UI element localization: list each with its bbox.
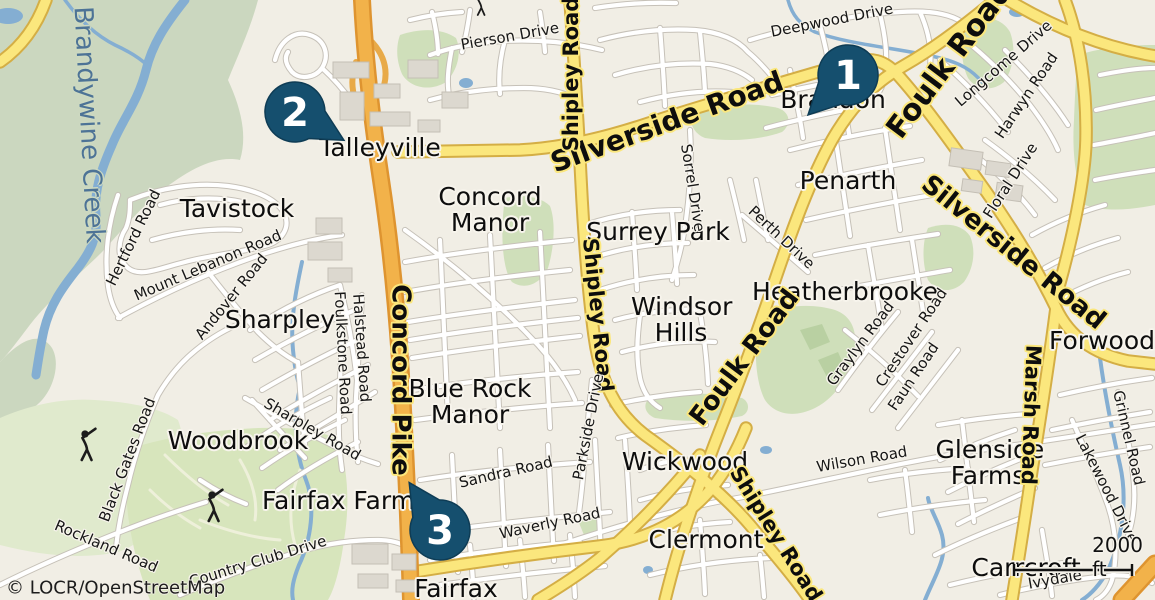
marker-3-number: 3 — [426, 508, 454, 554]
map-attribution: © LOCR/OpenStreetMap — [6, 578, 225, 599]
map-marker-2[interactable]: 2 — [239, 56, 351, 168]
map-base-layer — [0, 0, 1155, 600]
map-marker-1[interactable]: 1 — [792, 19, 904, 131]
map-canvas: Brandywine Creek Talleyville Tavistock S… — [0, 0, 1155, 600]
marker-1-number: 1 — [834, 53, 862, 99]
map-marker-3[interactable]: 3 — [384, 474, 496, 586]
marker-2-number: 2 — [281, 90, 309, 136]
scale-bar-label: 2000 ft — [1092, 533, 1143, 581]
